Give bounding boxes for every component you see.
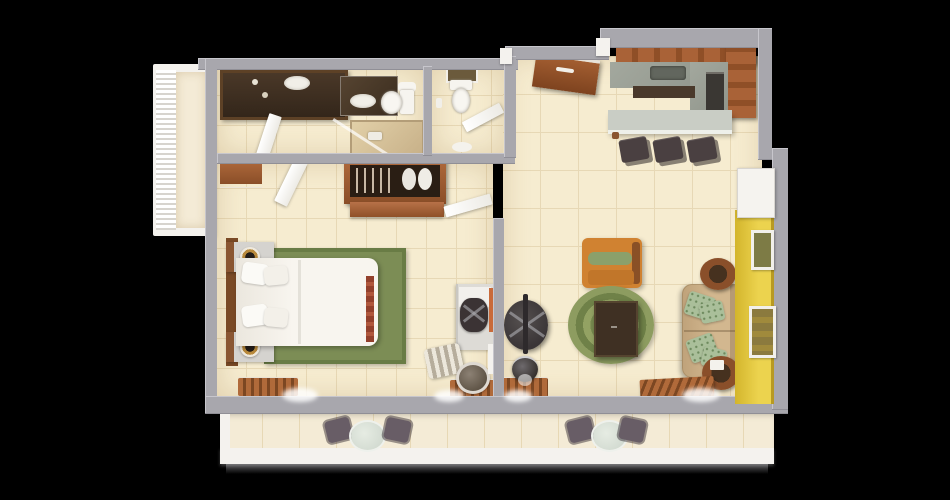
window-curtain [282, 388, 318, 402]
bar-stool [618, 136, 650, 164]
armchair-green-cushion [588, 252, 632, 265]
bathroom-vanity [220, 70, 348, 120]
garment-bag [418, 168, 432, 190]
entry-door-post [596, 38, 610, 56]
window-curtain [434, 390, 464, 402]
bed-pillow [263, 307, 289, 328]
console-lamp-glass [518, 374, 532, 386]
wc-toilet-bowl [452, 88, 470, 113]
side-table-card [710, 360, 724, 370]
wall-art-frame [751, 230, 774, 270]
duvet-fold [298, 260, 301, 344]
left-balcony-floor [176, 72, 206, 228]
toiletry-bottle [252, 79, 258, 85]
bottom-balcony-railing [220, 448, 774, 464]
right-wall-upper [758, 28, 772, 160]
sink [350, 94, 376, 108]
entry-top-wall [505, 46, 609, 60]
toiletry-bottle [262, 92, 268, 98]
top-wall-west [198, 58, 518, 70]
cooktop [706, 72, 724, 112]
bathroom-south-wall [217, 153, 515, 164]
toilet-bowl [381, 91, 402, 114]
cafe-table [351, 422, 384, 450]
bottom-balcony-railing-shadow [226, 464, 768, 474]
side-table-north [700, 258, 736, 290]
breakfast-bar-leg [612, 132, 619, 139]
round-mirror [456, 362, 490, 394]
garment-bag [402, 168, 416, 190]
left-wall [205, 58, 217, 404]
armchair-seat [588, 270, 634, 285]
wc-bath-mat [452, 142, 472, 152]
sink [284, 76, 310, 90]
bathtub-soap-dish [368, 132, 382, 140]
bedroom-dresser [220, 188, 262, 210]
coffee-table-handle [611, 326, 617, 328]
white-closet-panel [737, 168, 775, 218]
bar-stool [652, 136, 684, 164]
window-curtain [682, 388, 720, 402]
wall-art-frame [749, 306, 776, 358]
kitchen-lower-counter [633, 86, 695, 98]
bed-pillow [263, 265, 289, 286]
floor-plan-canvas [0, 0, 950, 500]
wc-east-wall [504, 56, 516, 158]
breakfast-bar [608, 110, 732, 130]
bottom-balcony-floor [226, 412, 774, 450]
sofa-seam [684, 330, 736, 332]
bar-stool [686, 136, 718, 164]
kitchen-cabinet-column [726, 42, 756, 118]
top-wall-kitchen [600, 28, 772, 48]
closet-lower-cabinet [350, 202, 444, 217]
wc-divider-wall [423, 66, 432, 156]
closet-hangers [356, 168, 392, 193]
coffee-table [594, 301, 638, 357]
toilet-tank [400, 90, 414, 114]
bedroom-living-partition [493, 218, 504, 400]
bed-runner [366, 276, 374, 342]
kitchen-sink [650, 66, 686, 80]
round-table-bar [523, 294, 528, 354]
left-balcony-lattice-railing [156, 70, 176, 230]
entry-door-post [500, 48, 512, 64]
window-curtain [504, 390, 532, 402]
toilet-paper-holder [436, 98, 442, 108]
